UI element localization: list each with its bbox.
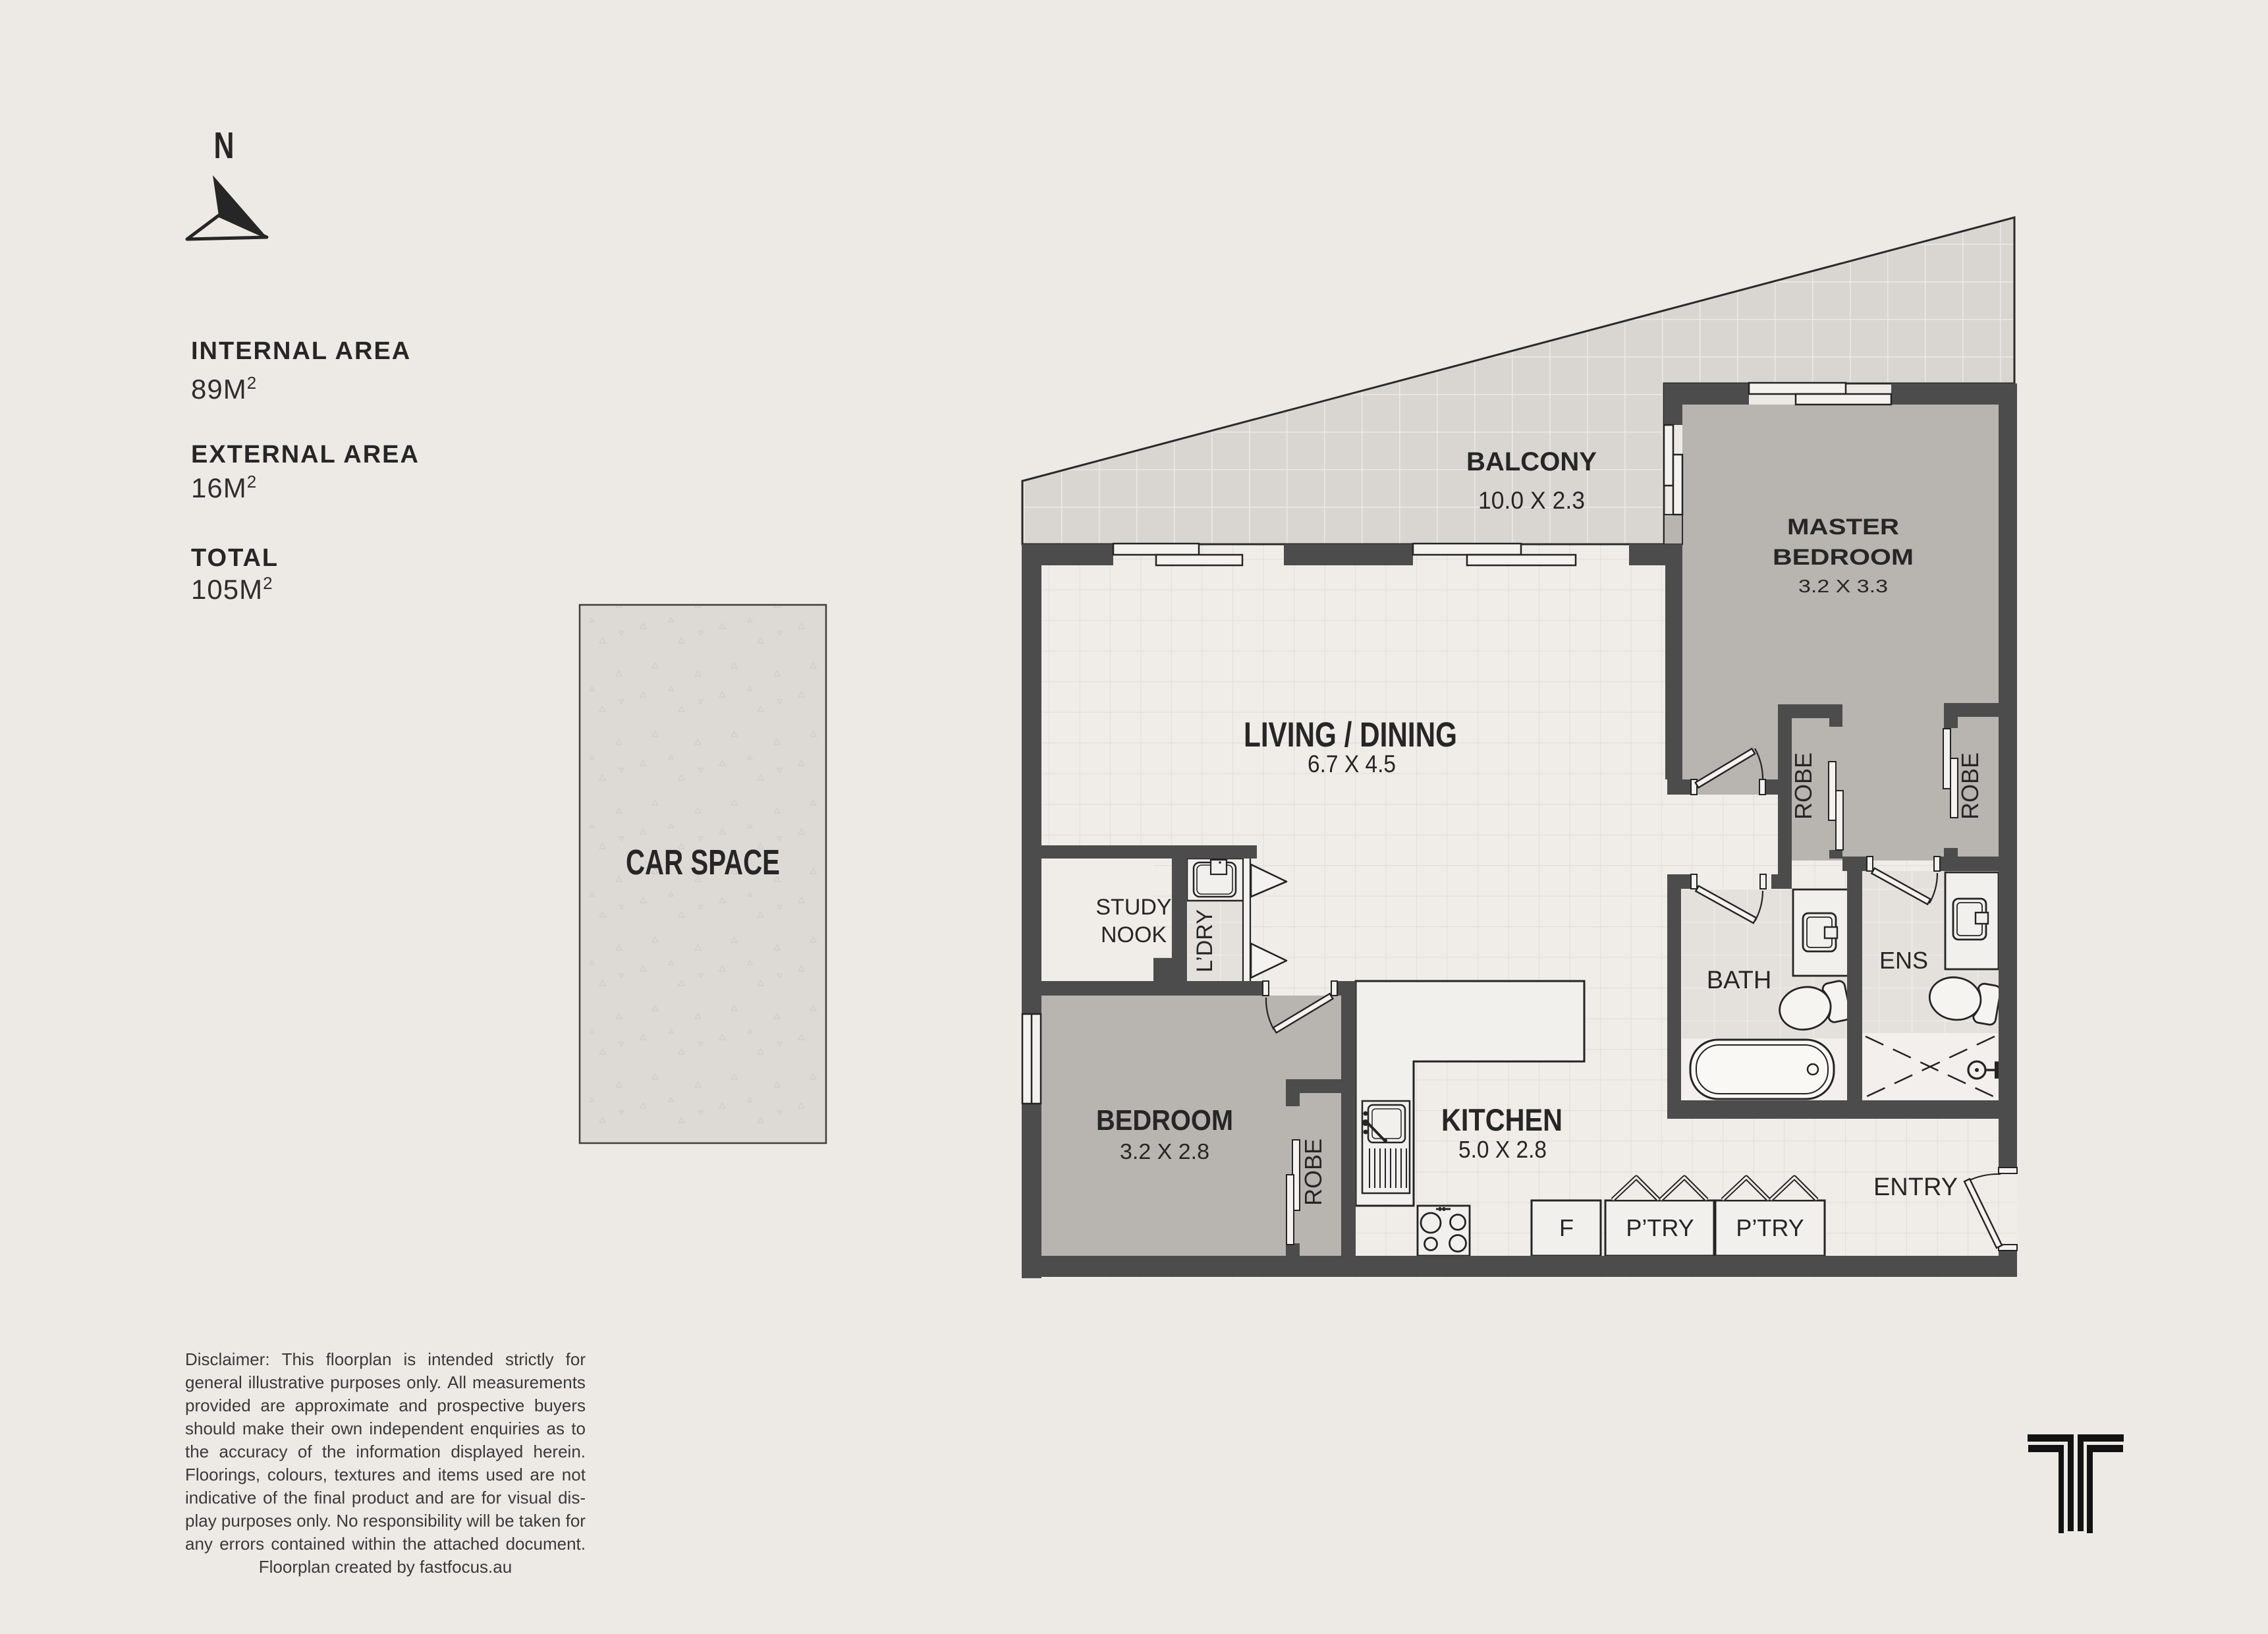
svg-text:KITCHEN: KITCHEN [1441,1102,1563,1137]
svg-text:ENS: ENS [1879,947,1928,974]
svg-text:MASTER: MASTER [1787,515,1899,540]
svg-text:N: N [214,125,235,167]
svg-text:STUDY: STUDY [1095,895,1171,920]
svg-text:ROBE: ROBE [1956,752,1983,820]
svg-text:ROBE: ROBE [1300,1139,1327,1206]
svg-text:ENTRY: ENTRY [1873,1173,1958,1201]
svg-text:ROBE: ROBE [1790,752,1817,820]
svg-text:6.7 X 4.5: 6.7 X 4.5 [1308,750,1396,777]
svg-text:LIVING / DINING: LIVING / DINING [1244,716,1457,754]
svg-text:BEDROOM: BEDROOM [1096,1104,1233,1137]
svg-text:F: F [1559,1214,1574,1241]
svg-text:NOOK: NOOK [1101,922,1167,947]
svg-text:P’TRY: P’TRY [1626,1214,1694,1241]
svg-text:10.0 X 2.3: 10.0 X 2.3 [1478,487,1585,514]
svg-text:P’TRY: P’TRY [1736,1214,1804,1241]
svg-text:BATH: BATH [1707,967,1772,994]
svg-text:BEDROOM: BEDROOM [1773,545,1914,570]
svg-text:5.0 X 2.8: 5.0 X 2.8 [1458,1136,1547,1163]
svg-text:3.2 X 2.8: 3.2 X 2.8 [1120,1139,1209,1164]
svg-text:L’DRY: L’DRY [1192,909,1217,972]
svg-text:BALCONY: BALCONY [1466,447,1597,476]
svg-text:CAR SPACE: CAR SPACE [626,843,780,882]
svg-text:3.2 X 3.3: 3.2 X 3.3 [1798,576,1888,596]
